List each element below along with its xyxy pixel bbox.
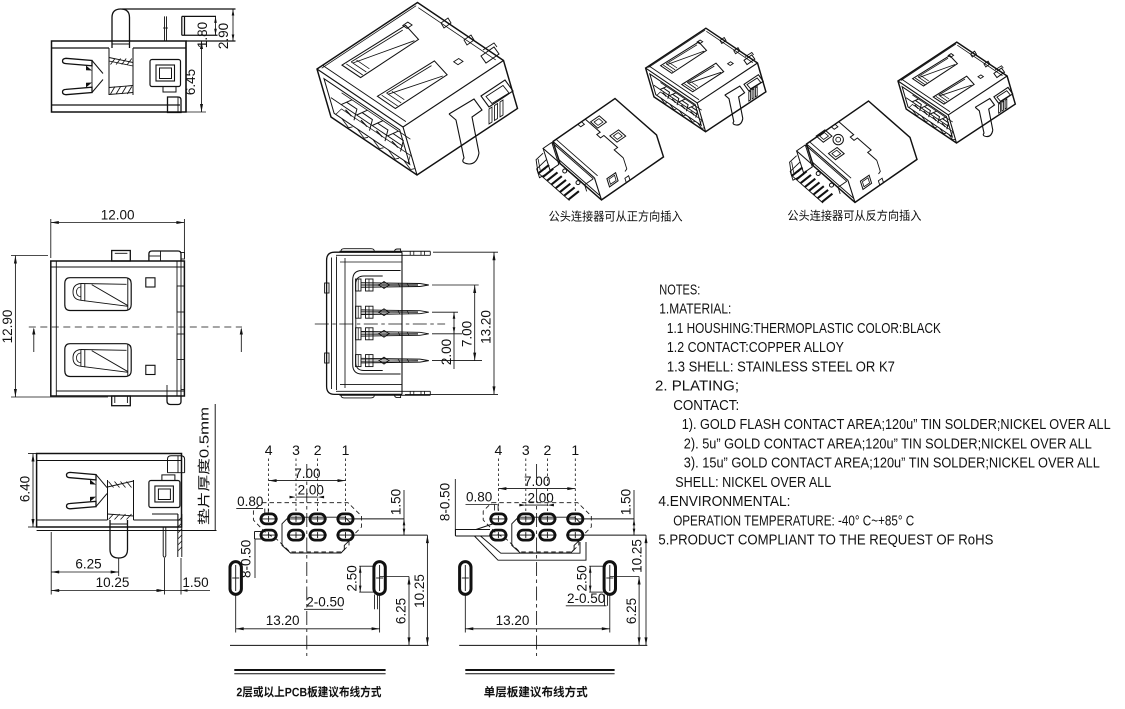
svg-text:13.20: 13.20: [496, 613, 530, 628]
svg-text:3). 15u” GOLD CONTACT AREA;120: 3). 15u” GOLD CONTACT AREA;120u” TIN SOL…: [684, 456, 1100, 472]
svg-text:1: 1: [571, 442, 579, 458]
svg-text:1.50: 1.50: [619, 489, 634, 515]
svg-text:8-0.50: 8-0.50: [438, 483, 453, 521]
svg-text:5.PRODUCT COMPLIANT TO THE REQ: 5.PRODUCT COMPLIANT TO THE REQUEST OF Ro…: [658, 533, 993, 549]
svg-text:2). 5u” GOLD CONTACT AREA;120u: 2). 5u” GOLD CONTACT AREA;120u” TIN SOLD…: [684, 436, 1092, 452]
svg-text:SHELL: NICKEL OVER ALL: SHELL: NICKEL OVER ALL: [675, 475, 831, 491]
svg-text:12.90: 12.90: [0, 310, 15, 344]
svg-text:1.1 HOUSHING:THERMOPLASTIC COL: 1.1 HOUSHING:THERMOPLASTIC COLOR:BLACK: [667, 321, 941, 337]
svg-text:6.40: 6.40: [18, 476, 33, 502]
svg-text:2-0.50: 2-0.50: [306, 594, 344, 609]
svg-text:6.25: 6.25: [75, 557, 101, 572]
svg-text:2.50: 2.50: [345, 565, 360, 591]
svg-text:3: 3: [292, 442, 300, 458]
svg-text:CONTACT:: CONTACT:: [673, 398, 739, 414]
svg-text:6.45: 6.45: [183, 69, 198, 95]
svg-text:2.00: 2.00: [439, 339, 454, 365]
svg-text:NOTES:: NOTES:: [659, 283, 700, 299]
svg-text:OPERATION TEMPERATURE: -40° C~: OPERATION TEMPERATURE: -40° C~+85° C: [673, 513, 914, 529]
svg-text:1.50: 1.50: [389, 489, 404, 515]
svg-text:4: 4: [495, 442, 503, 458]
svg-text:7.00: 7.00: [294, 466, 320, 481]
svg-text:10.25: 10.25: [96, 575, 130, 590]
svg-text:1.MATERIAL:: 1.MATERIAL:: [659, 302, 731, 318]
svg-text:2: 2: [544, 442, 552, 458]
svg-text:13.20: 13.20: [479, 310, 494, 344]
svg-text:1: 1: [342, 442, 350, 458]
svg-text:10.25: 10.25: [412, 574, 427, 608]
svg-text:7.00: 7.00: [460, 321, 475, 347]
svg-text:1). GOLD FLASH CONTACT AREA;12: 1). GOLD FLASH CONTACT AREA;120u” TIN SO…: [682, 417, 1111, 433]
svg-text:1.50: 1.50: [182, 575, 208, 590]
svg-text:6.25: 6.25: [624, 598, 639, 624]
svg-text:1.80: 1.80: [195, 22, 210, 48]
svg-text:3: 3: [522, 442, 530, 458]
svg-text:1.2 CONTACT:COPPER ALLOY: 1.2 CONTACT:COPPER ALLOY: [667, 340, 844, 356]
svg-text:2: 2: [314, 442, 322, 458]
svg-text:0.80: 0.80: [237, 494, 263, 509]
svg-text:0.80: 0.80: [466, 490, 492, 505]
svg-text:10.25: 10.25: [630, 539, 645, 573]
svg-text:6.25: 6.25: [394, 598, 409, 624]
svg-text:4.ENVIRONMENTAL:: 4.ENVIRONMENTAL:: [658, 494, 790, 510]
svg-text:2.00: 2.00: [298, 482, 324, 497]
svg-text:12.00: 12.00: [101, 208, 135, 223]
svg-text:7.00: 7.00: [524, 474, 550, 489]
svg-text:2.90: 2.90: [216, 23, 231, 49]
svg-text:2-0.50: 2-0.50: [567, 591, 605, 606]
svg-text:13.20: 13.20: [266, 613, 300, 628]
svg-text:4: 4: [265, 442, 273, 458]
svg-text:2.50: 2.50: [575, 565, 590, 591]
svg-text:1.3 SHELL: STAINLESS STEEL OR: 1.3 SHELL: STAINLESS STEEL OR K7: [667, 359, 895, 375]
svg-text:2. PLATING;: 2. PLATING;: [655, 379, 739, 395]
